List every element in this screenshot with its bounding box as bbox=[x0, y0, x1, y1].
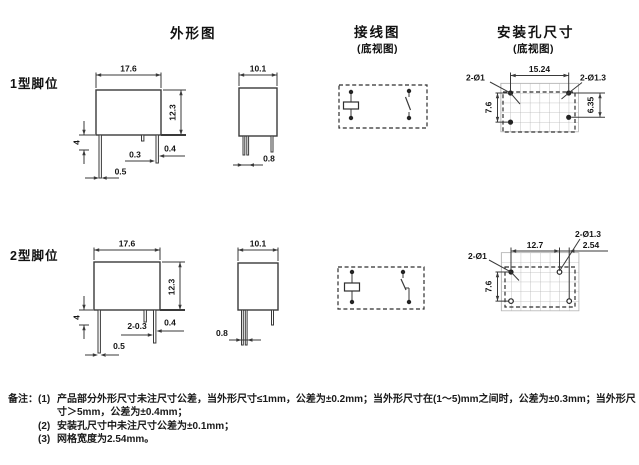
dim-type2-front-pin-c: 0.5 bbox=[113, 341, 125, 351]
type2-front-view: 17.6 12.3 4 2-0.3 0.4 0.5 bbox=[75, 235, 195, 360]
label-type2-small-holes: 2-Ø1 bbox=[468, 251, 487, 261]
label-type1-small-holes: 2-Ø1 bbox=[466, 73, 485, 83]
note-number: (3) bbox=[38, 433, 57, 446]
wiring-diagram-subtitle: (底视图) bbox=[357, 41, 398, 56]
type1-wiring-diagram bbox=[330, 76, 436, 134]
dim-type2-mount-left-pitch: 7.6 bbox=[484, 280, 494, 292]
note-item-2: (2) 安装孔尺寸中未注尺寸公差为±0.1mm； bbox=[38, 420, 636, 433]
type1-front-view: 17.6 12.3 4 0.3 0.4 0.5 bbox=[75, 60, 195, 190]
note-number: (2) bbox=[38, 420, 57, 433]
type2-wiring-diagram bbox=[328, 258, 434, 318]
dim-type2-side-pin: 0.8 bbox=[216, 328, 228, 338]
mounting-hole-title: 安装孔尺寸 bbox=[497, 21, 575, 41]
notes-label: 备注： bbox=[8, 393, 38, 447]
dim-type2-mount-pitch: 12.7 bbox=[527, 240, 544, 250]
type1-pin-label: 1型脚位 bbox=[10, 73, 58, 92]
dim-type1-front-pin-b: 0.4 bbox=[164, 144, 176, 154]
dim-type1-front-pin-c: 0.5 bbox=[115, 167, 127, 177]
dim-type1-mount-right-pitch: 6.35 bbox=[586, 96, 596, 113]
dim-type1-front-height: 12.3 bbox=[168, 104, 178, 121]
note-item-3: (3) 网格宽度为2.54mm。 bbox=[38, 433, 636, 446]
outline-view-title: 外形图 bbox=[170, 22, 217, 42]
dim-type2-front-pin-a: 2-0.3 bbox=[127, 321, 147, 331]
dim-type1-front-pin-a: 0.3 bbox=[129, 150, 141, 160]
type1-mounting-holes: 15.24 2-Ø1 2-Ø1.3 7.6 6.35 bbox=[462, 62, 617, 147]
wiring-diagram-title: 接线图 bbox=[354, 21, 401, 41]
note-number: (1) bbox=[38, 393, 57, 420]
label-type1-large-holes: 2-Ø1.3 bbox=[580, 73, 606, 83]
dim-type2-front-height: 12.3 bbox=[167, 278, 177, 295]
dim-type2-front-standoff: 4 bbox=[72, 315, 82, 320]
dim-type1-front-width: 17.6 bbox=[120, 64, 137, 74]
relay-dimension-drawing: 外形图 接线图 (底视图) 安装孔尺寸 (底视图) 1型脚位 2型脚位 17.6… bbox=[0, 0, 639, 465]
notes: 备注： (1) 产品部分外形尺寸未注尺寸公差，当外形尺寸≤1mm，公差为±0.2… bbox=[8, 393, 636, 447]
dim-type2-mount-offset: 2.54 bbox=[583, 240, 600, 250]
dim-type1-front-standoff: 4 bbox=[72, 140, 82, 145]
dim-type2-front-pin-b: 0.4 bbox=[164, 318, 176, 328]
dim-type1-mount-pitch: 15.24 bbox=[529, 64, 551, 74]
note-text: 网格宽度为2.54mm。 bbox=[57, 433, 636, 446]
dim-type2-front-width: 17.6 bbox=[119, 239, 136, 249]
dim-type1-mount-left-pitch: 7.6 bbox=[484, 101, 494, 113]
label-type2-large-holes: 2-Ø1.3 bbox=[575, 229, 601, 239]
dim-type1-side-width: 10.1 bbox=[250, 64, 267, 74]
dim-type2-side-width: 10.1 bbox=[250, 239, 267, 249]
type1-side-view: 10.1 0.8 bbox=[215, 60, 295, 190]
note-item-1: (1) 产品部分外形尺寸未注尺寸公差，当外形尺寸≤1mm，公差为±0.2mm；当… bbox=[38, 393, 636, 420]
note-text: 产品部分外形尺寸未注尺寸公差，当外形尺寸≤1mm，公差为±0.2mm；当外形尺寸… bbox=[57, 393, 636, 420]
note-text: 安装孔尺寸中未注尺寸公差为±0.1mm； bbox=[57, 420, 636, 433]
type2-pin-label: 2型脚位 bbox=[10, 245, 58, 264]
type2-mounting-holes: 12.7 2.54 2-Ø1.3 2-Ø1 7.6 bbox=[462, 228, 622, 323]
type2-side-view: 10.1 0.8 bbox=[215, 235, 295, 360]
mounting-hole-subtitle: (底视图) bbox=[513, 41, 554, 56]
dim-type1-side-pin: 0.8 bbox=[263, 154, 275, 164]
